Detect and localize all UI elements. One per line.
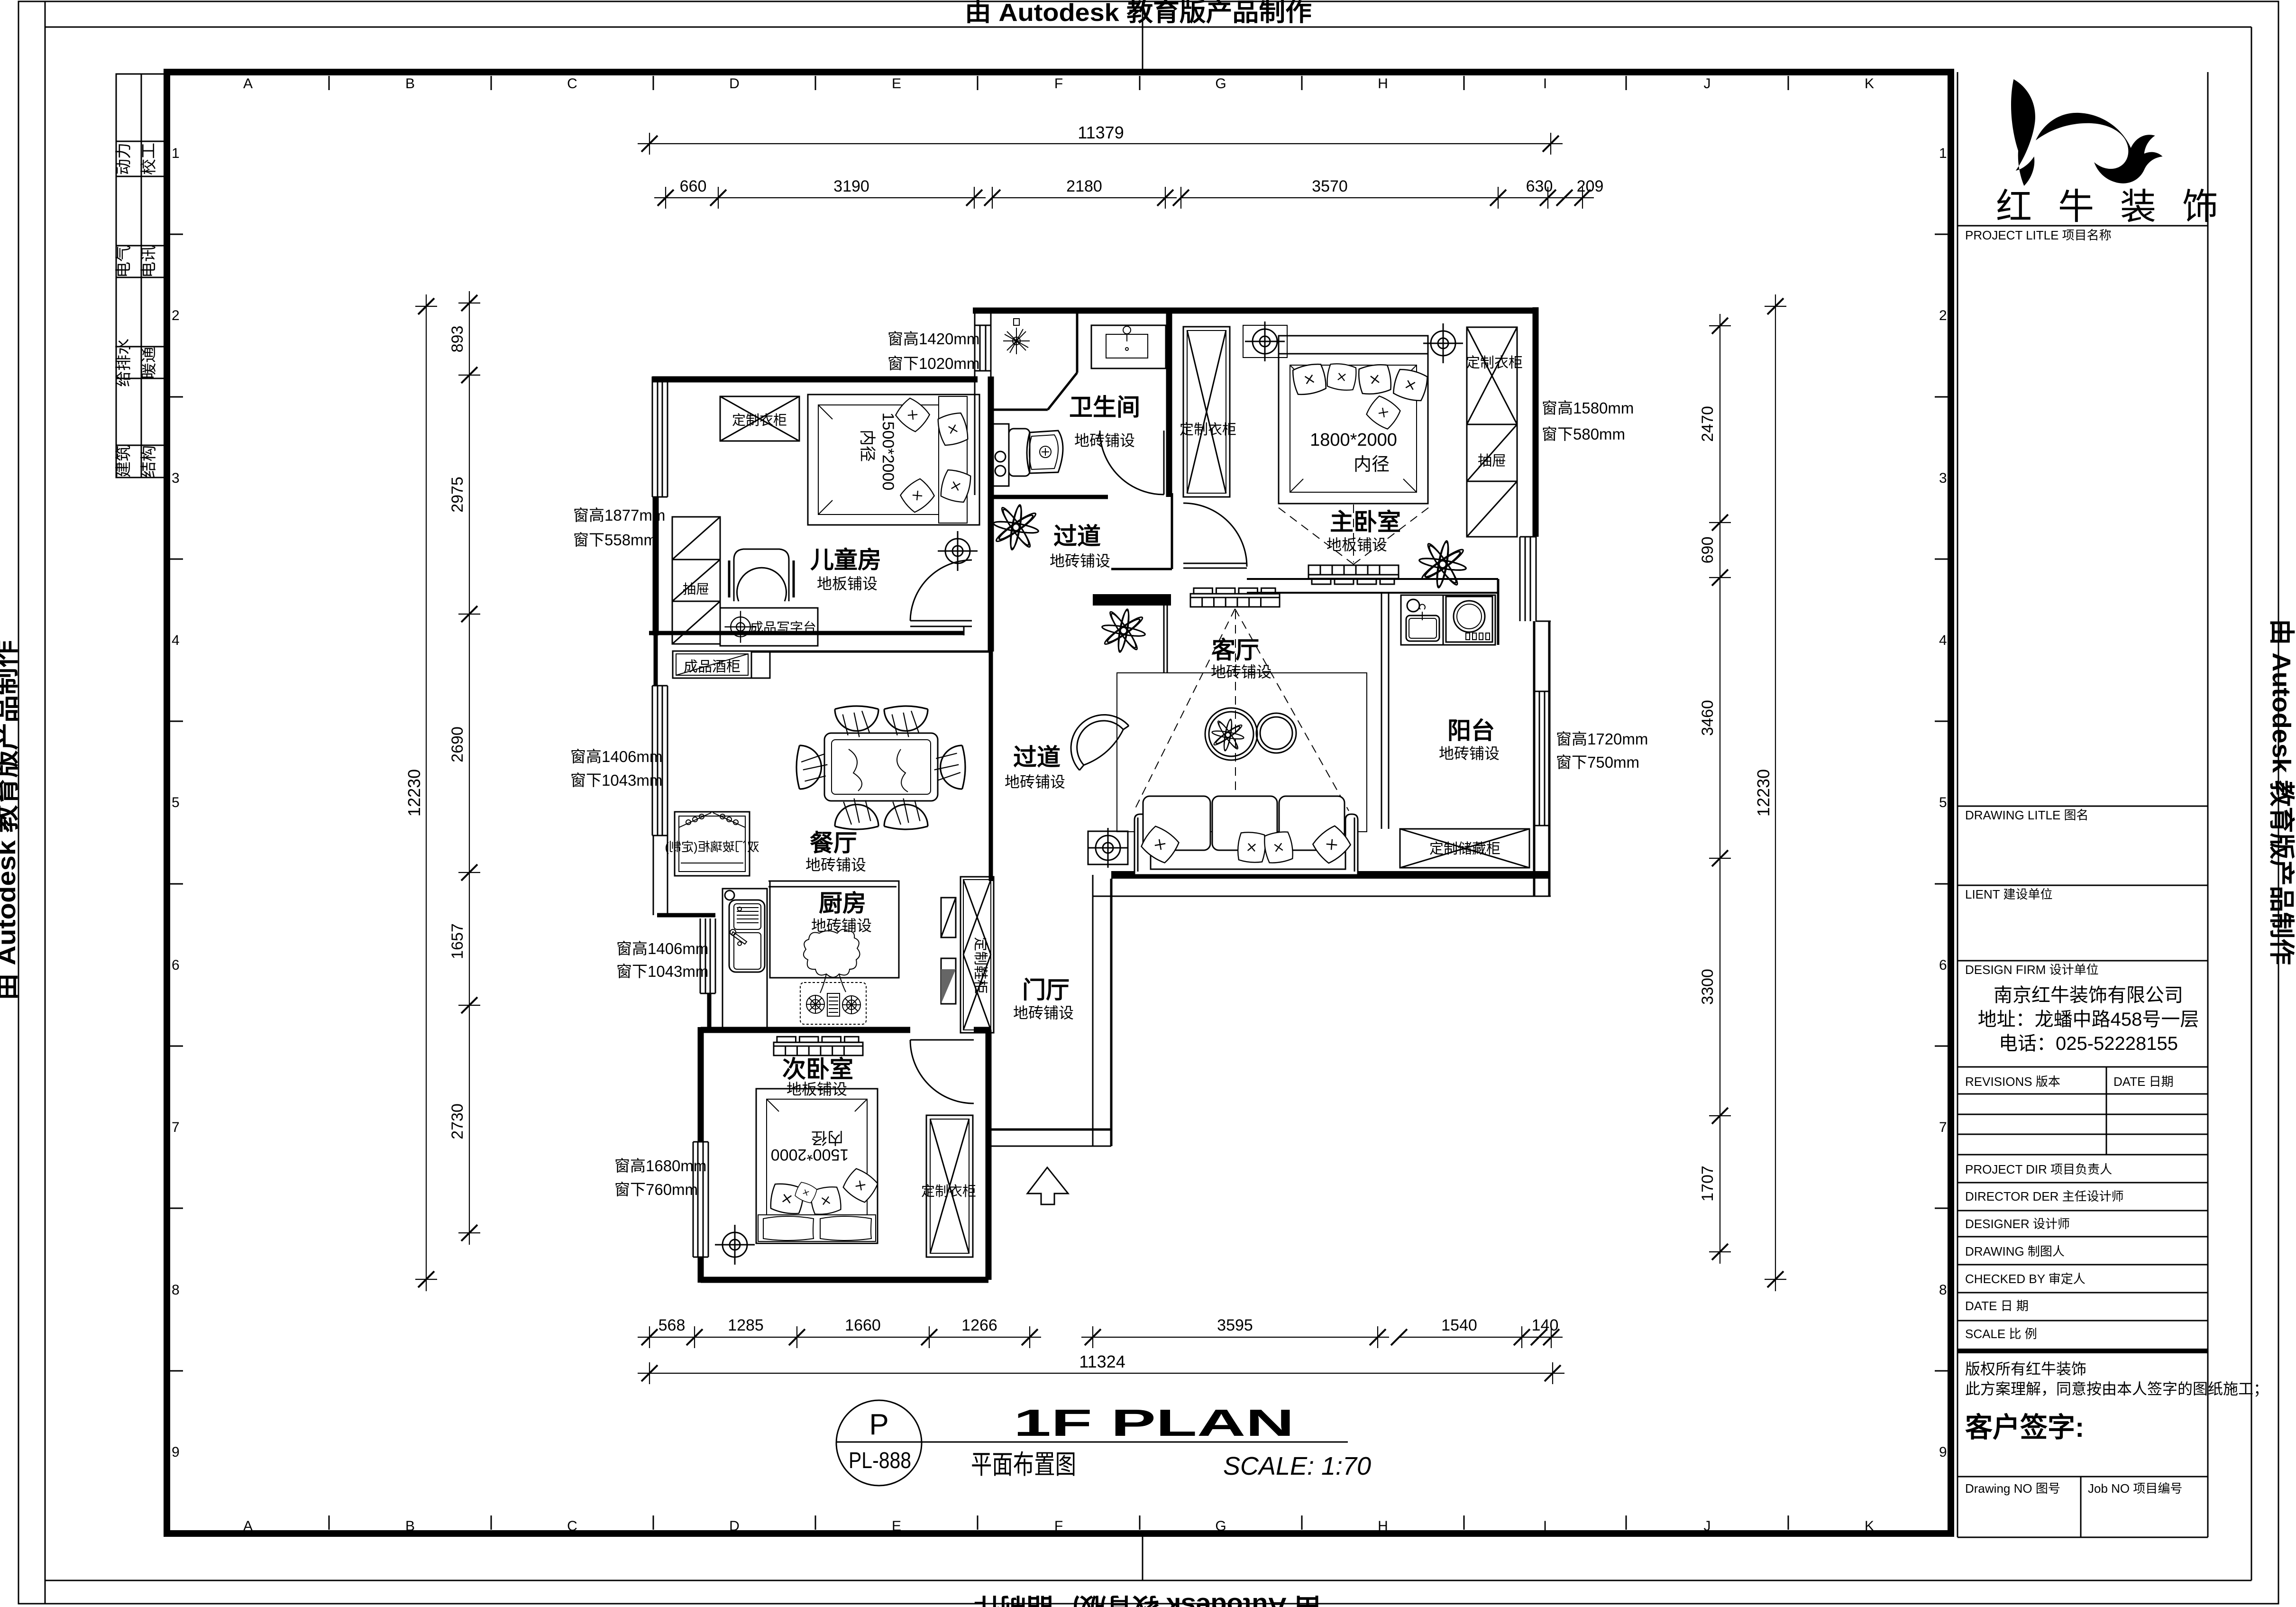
svg-text:11379: 11379 (1078, 123, 1124, 142)
svg-text:客户签字:: 客户签字: (1965, 1412, 2084, 1443)
svg-text:LIENT 建设单位: LIENT 建设单位 (1965, 887, 2052, 901)
svg-text:地板铺设: 地板铺设 (817, 575, 878, 592)
svg-text:G: G (1215, 1518, 1226, 1534)
svg-text:B: B (405, 76, 415, 92)
svg-text:893: 893 (448, 326, 467, 353)
svg-text:6: 6 (1939, 957, 1947, 973)
svg-text:690: 690 (1699, 537, 1717, 564)
svg-text:1F PLAN: 1F PLAN (1014, 1402, 1294, 1444)
svg-text:DATE 日 期: DATE 日 期 (1965, 1299, 2029, 1313)
svg-text:窗下760mm: 窗下760mm (614, 1181, 698, 1198)
svg-text:地板铺设: 地板铺设 (1326, 536, 1387, 553)
svg-text:建筑: 建筑 (115, 445, 133, 478)
svg-text:窗下750mm: 窗下750mm (1556, 753, 1639, 771)
svg-text:DRAWING 制图人: DRAWING 制图人 (1965, 1244, 2065, 1258)
svg-text:版权所有红牛装饰: 版权所有红牛装饰 (1965, 1360, 2086, 1377)
svg-text:K: K (1865, 1518, 1874, 1534)
svg-text:地砖铺设: 地砖铺设 (805, 856, 866, 873)
svg-text:定制衣柜: 定制衣柜 (1180, 422, 1236, 438)
svg-text:此方案理解，同意按由本人签字的图纸施工；: 此方案理解，同意按由本人签字的图纸施工； (1965, 1380, 2269, 1397)
svg-text:1657: 1657 (448, 923, 467, 959)
svg-text:红牛装饰: 红牛装饰 (1996, 187, 2244, 227)
svg-text:主卧室: 主卧室 (1330, 509, 1401, 535)
svg-text:门厅: 门厅 (1022, 977, 1070, 1003)
svg-text:DESIGN FIRM 设计单位: DESIGN FIRM 设计单位 (1965, 963, 2099, 977)
svg-text:定制储藏柜: 定制储藏柜 (1429, 841, 1500, 857)
svg-text:CHECKED BY 审定人: CHECKED BY 审定人 (1965, 1272, 2086, 1286)
svg-text:2975: 2975 (448, 477, 467, 513)
svg-text:地砖铺设: 地砖铺设 (1013, 1004, 1074, 1021)
svg-text:E: E (892, 76, 901, 92)
svg-text:630: 630 (1526, 177, 1553, 195)
svg-text:4: 4 (172, 633, 180, 648)
svg-text:地砖铺设: 地砖铺设 (811, 917, 872, 934)
svg-text:F: F (1054, 1518, 1063, 1534)
svg-text:660: 660 (680, 177, 707, 195)
svg-text:H: H (1378, 76, 1388, 92)
svg-text:电讯: 电讯 (140, 246, 158, 278)
svg-text:给排水: 给排水 (115, 339, 133, 387)
svg-text:P: P (869, 1408, 888, 1441)
svg-text:定制鞋柜: 定制鞋柜 (972, 937, 988, 994)
svg-text:A: A (243, 1518, 253, 1534)
svg-text:3570: 3570 (1312, 177, 1348, 195)
svg-text:PROJECT DIR 项目负责人: PROJECT DIR 项目负责人 (1965, 1162, 2112, 1176)
svg-text:8: 8 (1939, 1282, 1947, 1298)
svg-text:8: 8 (172, 1282, 180, 1298)
svg-text:209: 209 (1577, 177, 1604, 195)
svg-text:定制衣柜: 定制衣柜 (1466, 355, 1523, 371)
svg-text:5: 5 (172, 795, 180, 810)
svg-text:地址：龙蟠中路458号一层: 地址：龙蟠中路458号一层 (1978, 1009, 2199, 1030)
svg-text:地砖铺设: 地砖铺设 (1050, 552, 1110, 569)
svg-text:儿童房: 儿童房 (810, 547, 881, 573)
svg-text:DESIGNER 设计师: DESIGNER 设计师 (1965, 1217, 2070, 1231)
svg-text:抽屉: 抽屉 (1478, 453, 1506, 469)
svg-text:定制衣柜: 定制衣柜 (921, 1184, 976, 1199)
svg-text:卫生间: 卫生间 (1069, 394, 1140, 421)
svg-text:客厅: 客厅 (1212, 637, 1259, 663)
svg-text:1707: 1707 (1699, 1166, 1717, 1202)
svg-text:1500*2000: 1500*2000 (771, 1146, 849, 1164)
svg-text:1540: 1540 (1441, 1316, 1477, 1334)
svg-text:11324: 11324 (1079, 1352, 1125, 1371)
svg-text:2690: 2690 (448, 726, 467, 762)
svg-text:成品写字台: 成品写字台 (750, 620, 816, 635)
svg-text:2: 2 (1939, 308, 1947, 323)
svg-text:成品酒柜: 成品酒柜 (684, 659, 741, 675)
svg-text:过道: 过道 (1053, 523, 1101, 550)
svg-text:4: 4 (1939, 633, 1947, 648)
svg-text:双门玻璃柜(定制): 双门玻璃柜(定制) (665, 840, 759, 854)
svg-text:地砖铺设: 地砖铺设 (1074, 432, 1135, 449)
svg-text:电话：025-52228155: 电话：025-52228155 (1999, 1033, 2178, 1054)
svg-text:校工: 校工 (140, 143, 158, 175)
svg-text:140: 140 (1532, 1316, 1559, 1334)
svg-text:窗下1043mm: 窗下1043mm (570, 771, 662, 789)
svg-text:抽屉: 抽屉 (683, 582, 709, 597)
svg-text:5: 5 (1939, 795, 1947, 810)
svg-text:J: J (1704, 76, 1711, 92)
svg-text:厨房: 厨房 (819, 890, 866, 917)
svg-text:Drawing NO 图号: Drawing NO 图号 (1965, 1481, 2060, 1496)
svg-text:窗下1020mm: 窗下1020mm (887, 355, 979, 372)
svg-text:DATE 日期: DATE 日期 (2113, 1074, 2174, 1089)
svg-text:地板铺设: 地板铺设 (787, 1081, 847, 1098)
svg-text:9: 9 (172, 1444, 180, 1460)
svg-text:动力: 动力 (115, 143, 133, 175)
svg-text:B: B (405, 1518, 415, 1534)
svg-text:SCALE 比 例: SCALE 比 例 (1965, 1327, 2037, 1341)
svg-text:1285: 1285 (728, 1316, 764, 1334)
svg-text:阳台: 阳台 (1447, 717, 1495, 744)
svg-text:568: 568 (659, 1316, 686, 1334)
svg-text:I: I (1543, 1518, 1547, 1534)
svg-text:平面布置图: 平面布置图 (971, 1450, 1076, 1479)
svg-text:窗高1580mm: 窗高1580mm (1542, 399, 1634, 417)
svg-text:G: G (1215, 76, 1226, 92)
svg-text:J: J (1704, 1518, 1711, 1534)
svg-text:过道: 过道 (1013, 744, 1061, 771)
svg-text:DIRECTOR DER 主任设计师: DIRECTOR DER 主任设计师 (1965, 1189, 2124, 1203)
svg-text:窗高1720mm: 窗高1720mm (1556, 730, 1648, 748)
svg-text:PROJECT LITLE 项目名称: PROJECT LITLE 项目名称 (1965, 228, 2112, 242)
svg-text:由 Autodesk 教育版产品制作: 由 Autodesk 教育版产品制作 (0, 640, 21, 1001)
svg-text:由 Autodesk 教育版产品制作: 由 Autodesk 教育版产品制作 (974, 1592, 1321, 1607)
svg-text:窗高1406mm: 窗高1406mm (570, 748, 662, 765)
svg-text:F: F (1054, 76, 1063, 92)
svg-text:窗下558mm: 窗下558mm (573, 531, 657, 549)
svg-text:暖通: 暖通 (140, 347, 158, 379)
svg-text:3595: 3595 (1217, 1316, 1253, 1334)
svg-text:1660: 1660 (845, 1316, 881, 1334)
svg-text:12230: 12230 (404, 769, 424, 817)
svg-text:餐厅: 餐厅 (810, 830, 857, 856)
svg-text:1800*2000: 1800*2000 (1310, 430, 1397, 450)
svg-text:D: D (729, 1518, 740, 1534)
svg-text:电气: 电气 (115, 246, 133, 278)
svg-text:内径: 内径 (1354, 455, 1390, 475)
svg-text:12230: 12230 (1754, 769, 1773, 817)
svg-text:地砖铺设: 地砖铺设 (1211, 663, 1271, 680)
svg-text:Job NO 项目编号: Job NO 项目编号 (2088, 1481, 2182, 1496)
svg-text:SCALE: 1:70: SCALE: 1:70 (1223, 1452, 1371, 1480)
svg-text:I: I (1543, 76, 1547, 92)
svg-text:由 Autodesk 教育版产品制作: 由 Autodesk 教育版产品制作 (2267, 619, 2296, 965)
svg-text:定制衣柜: 定制衣柜 (732, 413, 787, 428)
svg-text:3: 3 (172, 470, 180, 486)
svg-text:9: 9 (1939, 1444, 1947, 1460)
svg-text:内径: 内径 (858, 430, 876, 462)
svg-text:地砖铺设: 地砖铺设 (1439, 745, 1500, 762)
svg-text:K: K (1865, 76, 1874, 92)
svg-text:DRAWING LITLE 图名: DRAWING LITLE 图名 (1965, 808, 2089, 822)
svg-text:7: 7 (1939, 1120, 1947, 1135)
svg-text:窗下1043mm: 窗下1043mm (616, 963, 708, 980)
svg-text:2: 2 (172, 308, 180, 323)
svg-text:窗高1406mm: 窗高1406mm (616, 940, 708, 957)
svg-text:结构: 结构 (140, 445, 158, 478)
svg-text:窗高1877mm: 窗高1877mm (573, 506, 665, 524)
svg-text:C: C (567, 1518, 577, 1534)
svg-text:H: H (1378, 1518, 1388, 1534)
svg-text:地砖铺设: 地砖铺设 (1005, 773, 1065, 790)
svg-text:1: 1 (1939, 146, 1947, 161)
svg-text:南京红牛装饰有限公司: 南京红牛装饰有限公司 (1994, 985, 2183, 1006)
svg-text:2730: 2730 (448, 1103, 467, 1139)
svg-text:A: A (243, 76, 253, 92)
svg-text:3460: 3460 (1699, 700, 1717, 736)
svg-text:PL-888: PL-888 (849, 1448, 911, 1473)
svg-text:2470: 2470 (1699, 406, 1717, 442)
svg-text:窗高1420mm: 窗高1420mm (887, 330, 979, 348)
svg-text:C: C (567, 76, 577, 92)
svg-text:窗高1680mm: 窗高1680mm (614, 1157, 706, 1175)
svg-text:2180: 2180 (1066, 177, 1102, 195)
svg-text:3300: 3300 (1699, 969, 1717, 1005)
svg-text:1500*2000: 1500*2000 (879, 413, 897, 491)
svg-text:6: 6 (172, 957, 180, 973)
svg-text:D: D (729, 76, 740, 92)
svg-text:由 Autodesk 教育版产品制作: 由 Autodesk 教育版产品制作 (965, 0, 1312, 27)
svg-text:次卧室: 次卧室 (782, 1056, 853, 1083)
svg-text:内径: 内径 (811, 1129, 843, 1147)
svg-text:3190: 3190 (833, 177, 869, 195)
svg-text:窗下580mm: 窗下580mm (1542, 425, 1625, 443)
svg-text:1266: 1266 (961, 1316, 997, 1334)
svg-text:3: 3 (1939, 470, 1947, 486)
svg-text:REVISIONS 版本: REVISIONS 版本 (1965, 1074, 2060, 1089)
svg-text:7: 7 (172, 1120, 180, 1135)
svg-text:E: E (892, 1518, 901, 1534)
svg-text:1: 1 (172, 146, 180, 161)
